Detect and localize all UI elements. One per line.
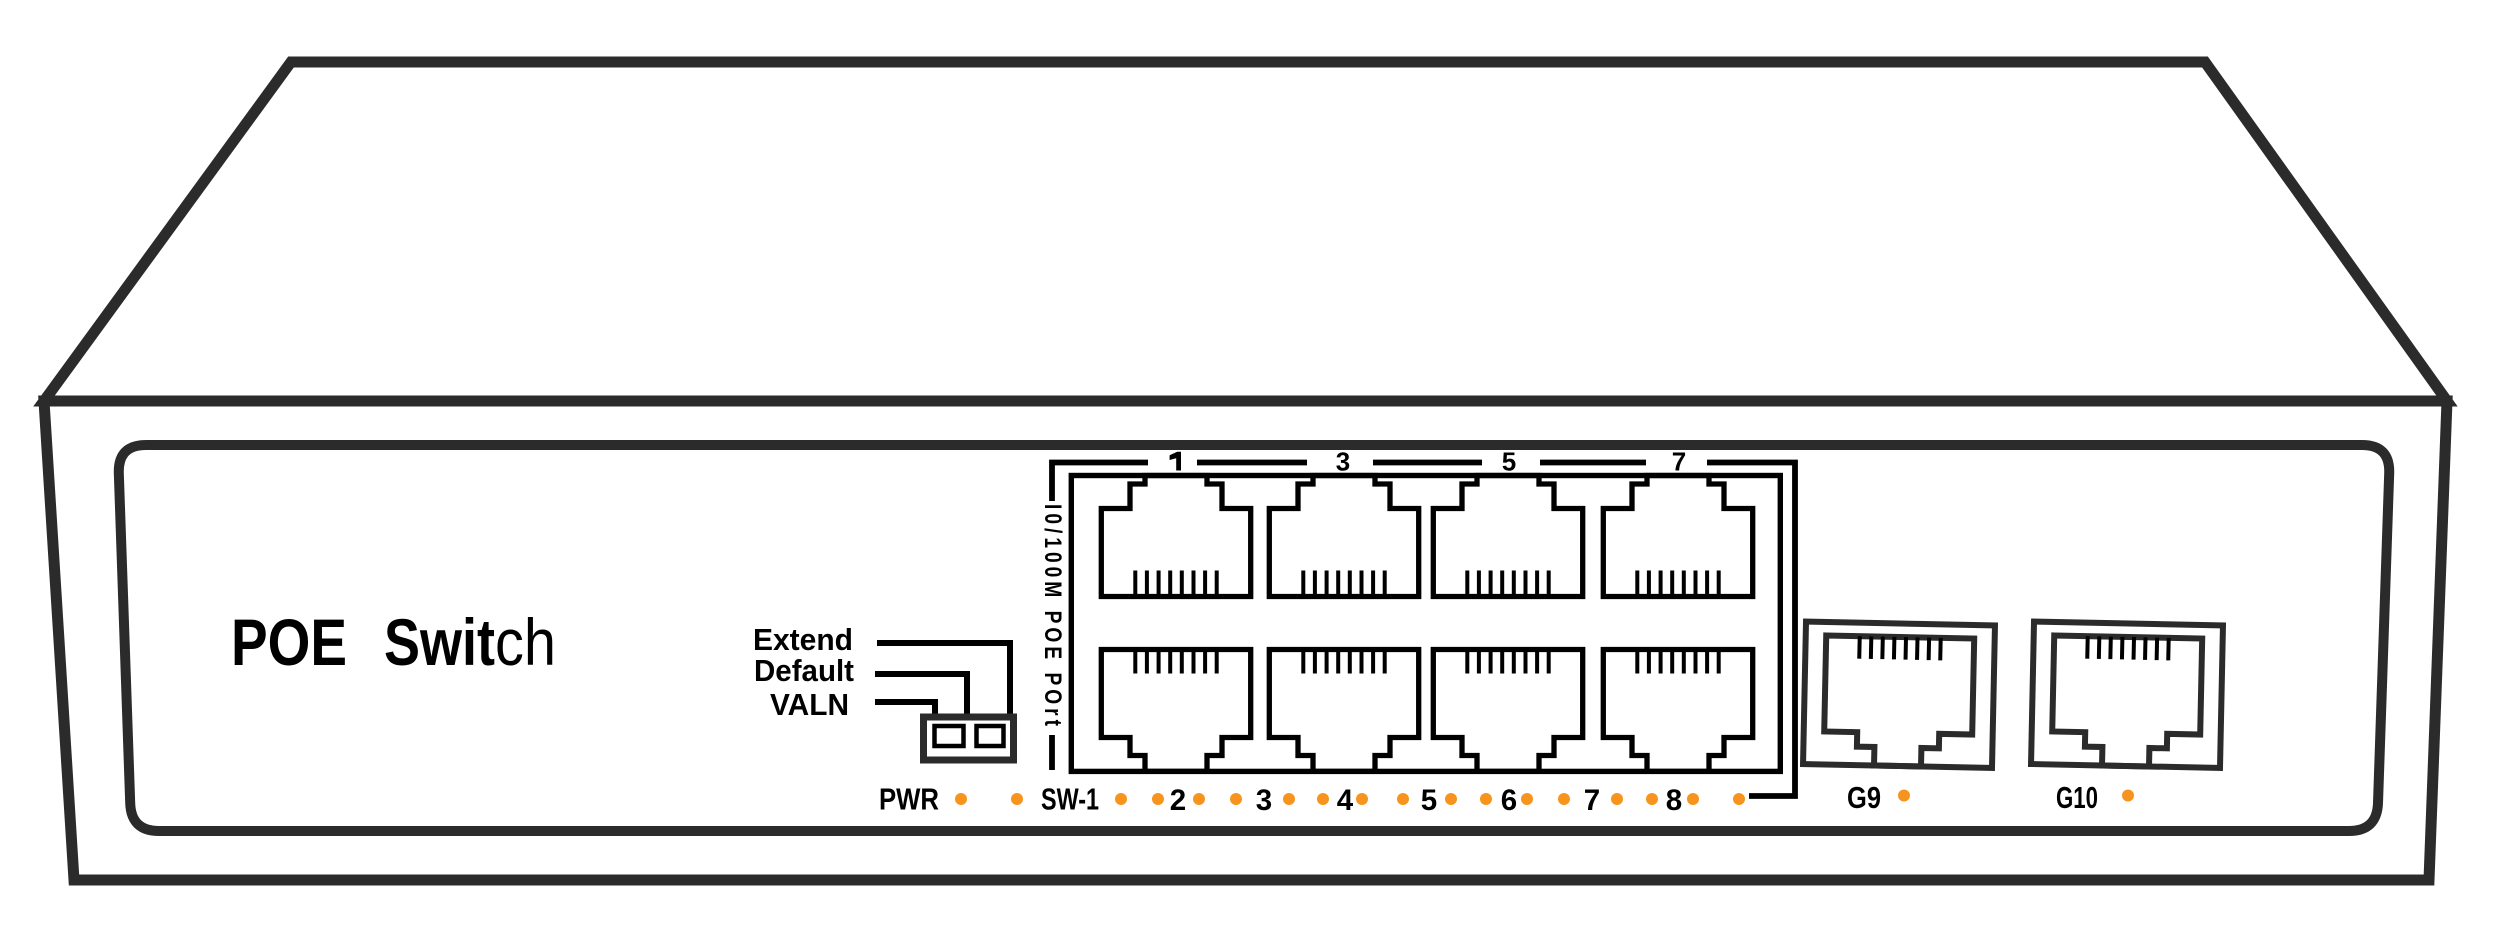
- svg-text:PWR: PWR: [879, 783, 939, 817]
- svg-text:Default: Default: [754, 653, 854, 688]
- svg-text:I0/100M POE POrt: I0/100M POE POrt: [1039, 504, 1066, 730]
- svg-text:Swit: Swit: [384, 605, 495, 679]
- svg-text:4: 4: [1337, 784, 1354, 817]
- svg-text:5: 5: [1421, 784, 1437, 817]
- svg-text:3: 3: [1336, 447, 1350, 477]
- svg-text:5: 5: [1502, 447, 1516, 477]
- svg-text:Extend: Extend: [753, 622, 853, 657]
- svg-text:6: 6: [1501, 784, 1517, 817]
- svg-text:POE: POE: [231, 605, 347, 679]
- svg-text:VALN: VALN: [770, 687, 849, 722]
- svg-text:ch: ch: [495, 605, 556, 679]
- svg-text:8: 8: [1666, 784, 1682, 817]
- svg-text:2: 2: [1170, 784, 1186, 817]
- svg-text:G9: G9: [1847, 781, 1881, 815]
- svg-text:7: 7: [1672, 447, 1686, 477]
- svg-text:SW-1: SW-1: [1041, 783, 1099, 817]
- svg-text:7: 7: [1584, 784, 1600, 817]
- svg-text:G10: G10: [2056, 781, 2098, 815]
- svg-text:3: 3: [1256, 784, 1272, 817]
